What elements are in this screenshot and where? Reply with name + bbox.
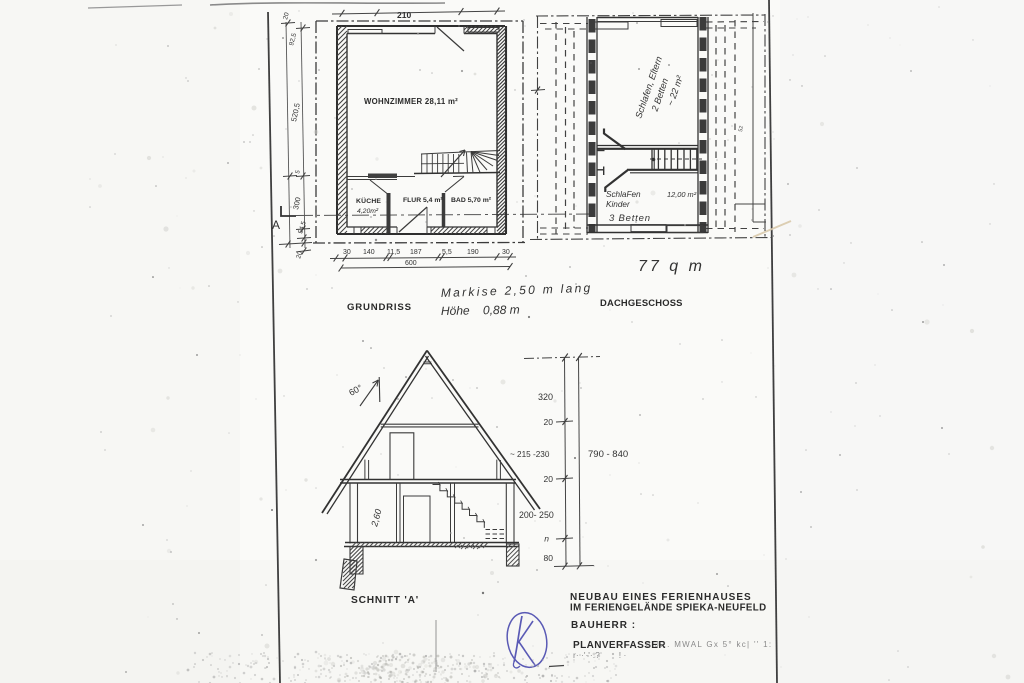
svg-text:11,5: 11,5 [387, 249, 400, 256]
svg-text:~ 215 -230: ~ 215 -230 [510, 450, 550, 459]
svg-text:n: n [544, 534, 549, 544]
svg-text:140: 140 [363, 249, 375, 256]
svg-text:200- 250: 200- 250 [519, 510, 554, 520]
svg-text:SchlaFen: SchlaFen [606, 190, 641, 199]
svg-text:Kinder: Kinder [606, 200, 630, 209]
svg-text:20: 20 [544, 417, 554, 427]
svg-text:80: 80 [544, 553, 554, 563]
svg-text:210: 210 [397, 10, 411, 20]
svg-text:WOHNZIMMER 28,11 m²: WOHNZIMMER 28,11 m² [364, 97, 458, 106]
svg-text:IM FERIENGELÄNDE SPIEKA-NEUFEL: IM FERIENGELÄNDE SPIEKA-NEUFELD [570, 603, 766, 614]
svg-text:600: 600 [405, 260, 417, 267]
svg-text:GRUNDRISS: GRUNDRISS [347, 302, 412, 313]
svg-text:FLUR 5,4 m²: FLUR 5,4 m² [403, 197, 443, 204]
svg-text:NEUBAU EINES FERIENHAUSES: NEUBAU EINES FERIENHAUSES [570, 592, 752, 603]
svg-text:30: 30 [502, 249, 510, 256]
svg-text:SCHNITT 'A': SCHNITT 'A' [351, 595, 419, 606]
svg-text:3 Betten: 3 Betten [609, 213, 651, 224]
svg-text:790 - 840: 790 - 840 [588, 449, 628, 460]
svg-text:12,00 m²: 12,00 m² [667, 190, 697, 199]
svg-text:Höhe 0,88 m: Höhe 0,88 m [441, 303, 520, 318]
svg-text:4,20m²: 4,20m² [357, 208, 379, 215]
svg-text:A: A [272, 218, 280, 232]
svg-text:77 q m: 77 q m [638, 258, 705, 275]
svg-text:190: 190 [467, 249, 479, 256]
svg-text:187: 187 [410, 249, 422, 256]
svg-text:KÜCHE: KÜCHE [356, 196, 381, 205]
svg-text:c J.:. MWAL Gx 5° kc| '' 1:: c J.:. MWAL Gx 5° kc| '' 1: [646, 640, 772, 649]
svg-text:20: 20 [544, 474, 554, 484]
svg-text:52: 52 [738, 125, 745, 132]
svg-text:DACHGESCHOSS: DACHGESCHOSS [600, 297, 683, 308]
svg-text:320: 320 [538, 392, 553, 402]
